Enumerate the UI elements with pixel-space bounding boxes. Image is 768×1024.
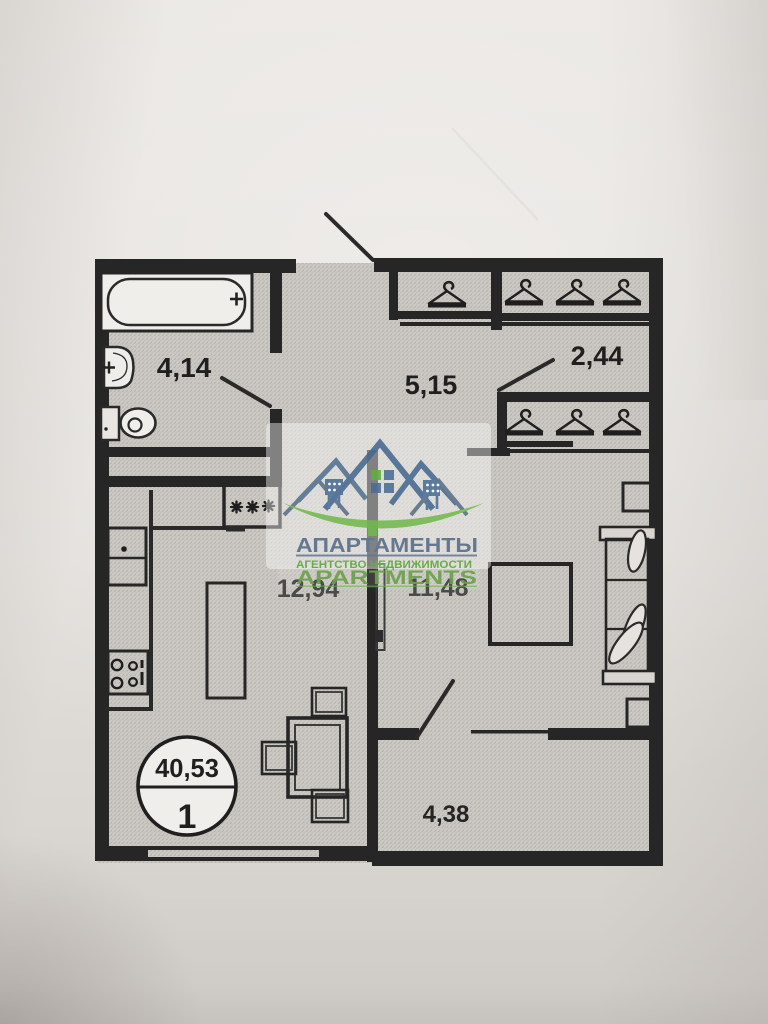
svg-text:2,44: 2,44 xyxy=(571,341,624,371)
svg-text:4,38: 4,38 xyxy=(423,801,470,828)
svg-text:5,15: 5,15 xyxy=(405,370,458,400)
svg-text:АПАРТАМЕНТЫ: АПАРТАМЕНТЫ xyxy=(296,535,478,557)
svg-text:4,14: 4,14 xyxy=(157,352,212,383)
svg-text:1: 1 xyxy=(178,798,197,836)
svg-text:40,53: 40,53 xyxy=(155,755,219,783)
